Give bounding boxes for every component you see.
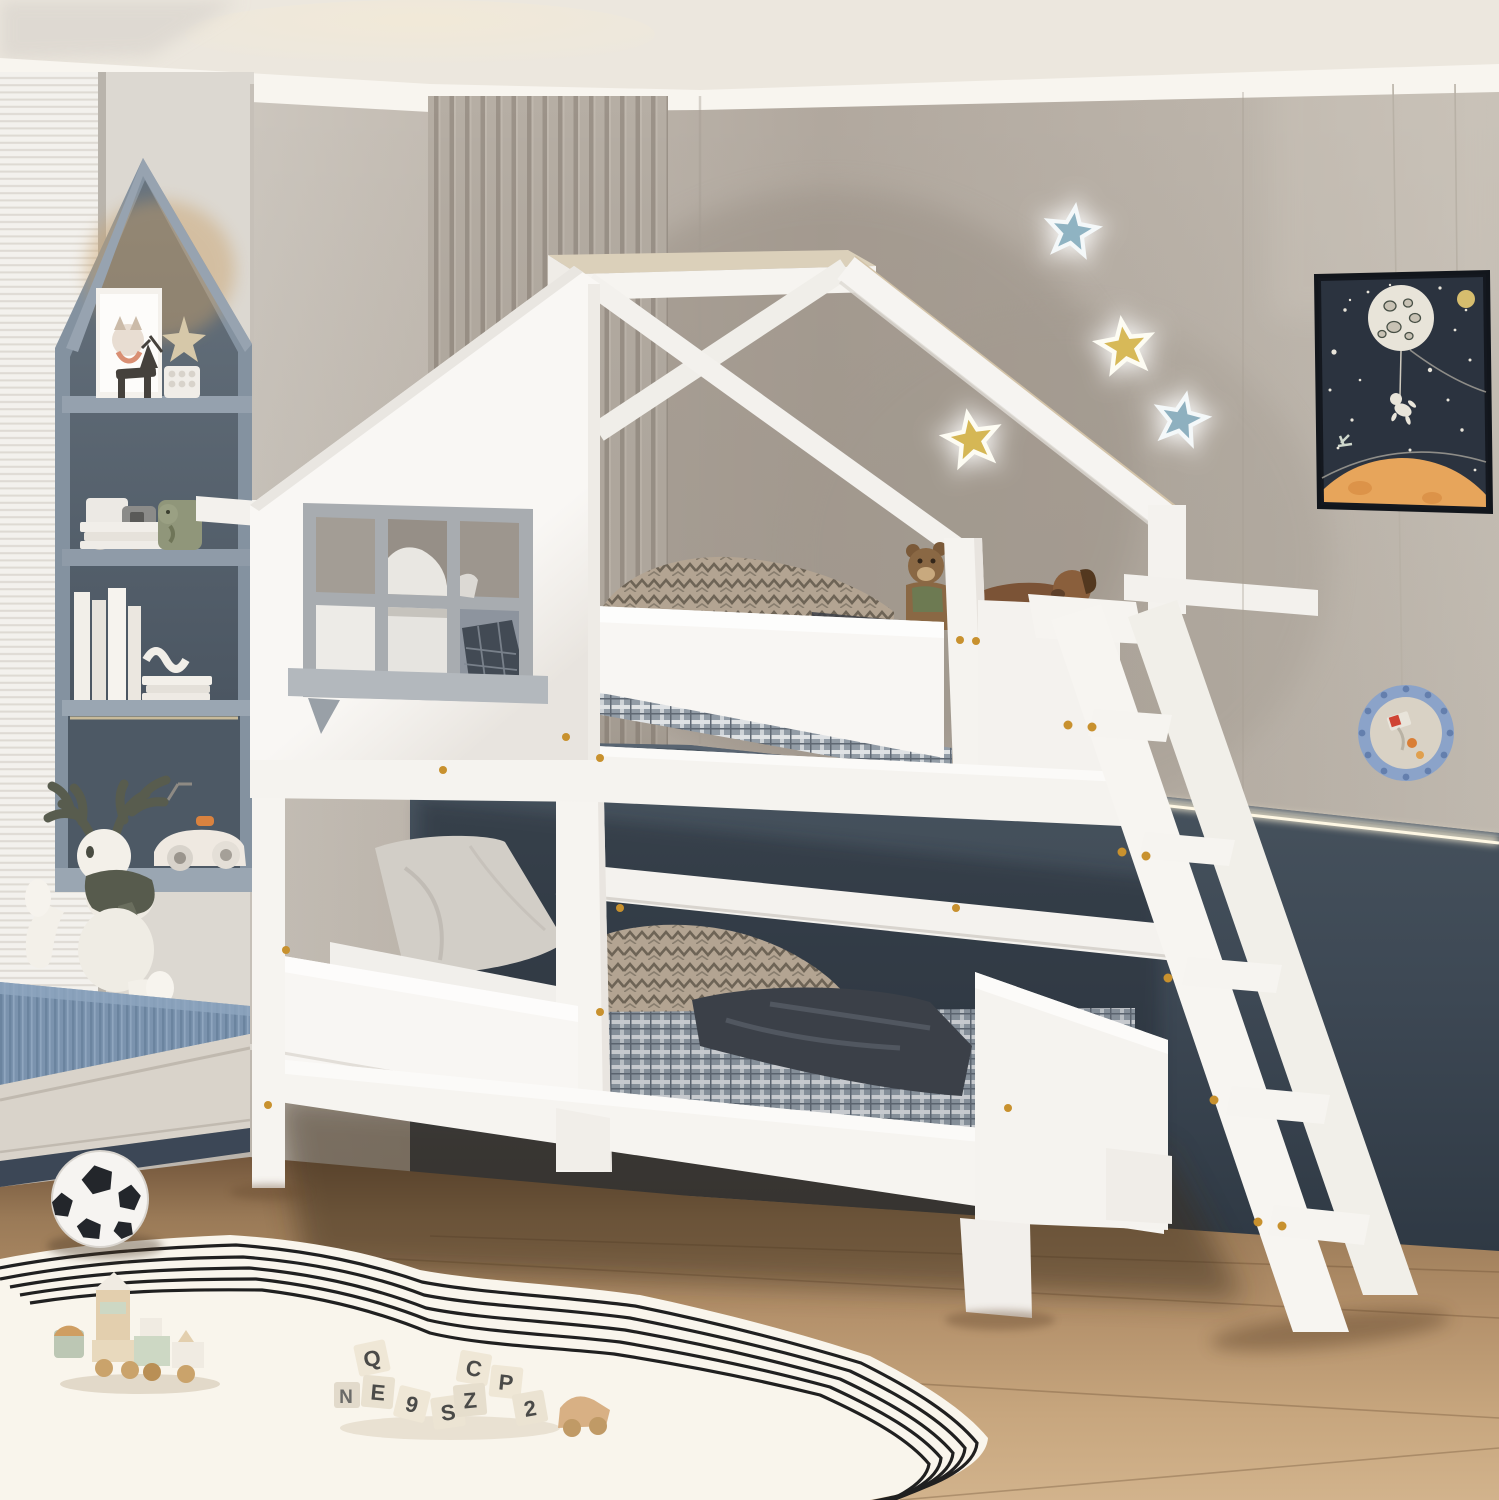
- svg-text:Z: Z: [462, 1387, 478, 1413]
- svg-text:E: E: [370, 1379, 387, 1405]
- svg-text:P: P: [497, 1369, 514, 1395]
- svg-text:N: N: [339, 1387, 353, 1408]
